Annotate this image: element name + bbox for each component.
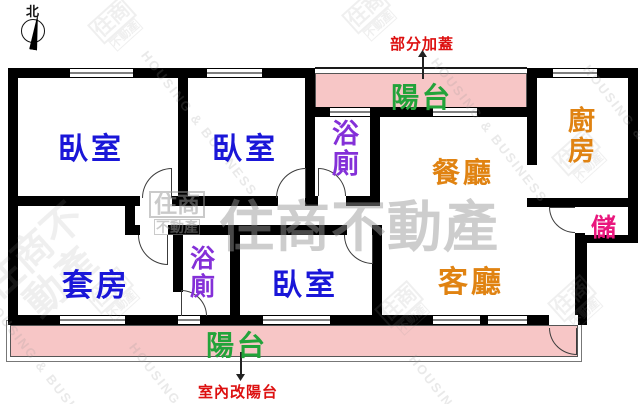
wall: [370, 107, 380, 200]
room-label-living: 客廳: [438, 257, 504, 301]
wall: [305, 68, 315, 206]
room-label-kitchen: 廚房: [567, 106, 596, 166]
door-arc-bedroom3: [344, 235, 373, 264]
window: [488, 315, 527, 325]
room-label-storage: 儲: [591, 208, 616, 244]
compass-north-label: 北: [26, 1, 39, 20]
window: [70, 68, 133, 78]
wall: [125, 225, 140, 235]
wall: [575, 243, 587, 325]
door-arc-bedroom1: [142, 168, 172, 198]
wall: [8, 196, 140, 206]
room-label-balcony-top: 陽台: [391, 76, 453, 116]
wall: [230, 235, 240, 315]
window: [207, 68, 262, 78]
window: [433, 315, 480, 325]
floorplan-canvas: 北 部分加蓋 室內改陽台 臥室 臥室 浴廁 陽台 餐廳 廚房 套房 浴廁 臥室 …: [0, 0, 640, 404]
room-label-suite: 套房: [62, 260, 130, 305]
wall: [173, 235, 183, 292]
wall: [346, 196, 380, 206]
arrow-down-icon: [236, 374, 245, 381]
room-label-bedroom1: 臥室: [58, 124, 124, 168]
window: [60, 315, 125, 325]
room-label-bath1: 浴廁: [331, 119, 360, 179]
door-arc-suite: [138, 235, 168, 265]
window: [330, 107, 370, 117]
wall: [527, 198, 638, 207]
door-arc-storage: [549, 207, 575, 233]
window: [553, 68, 597, 78]
balcony-door-opening: [548, 315, 579, 325]
wall: [178, 78, 188, 196]
wall: [8, 68, 315, 78]
door-arc-bedroom2: [276, 168, 306, 198]
watermark-tile-logo: 住商不動產: [83, 0, 153, 61]
room-label-dining: 餐廳: [432, 151, 494, 191]
wall: [168, 225, 347, 235]
room-label-balcony-bottom: 陽台: [206, 324, 268, 364]
room-label-bath2: 浴廁: [189, 245, 216, 301]
balcony-top-thin-edge: [315, 67, 527, 69]
wall: [306, 196, 318, 206]
window: [263, 315, 330, 325]
wall: [172, 196, 278, 206]
balcony-bottom-area: [10, 325, 578, 357]
room-label-bedroom3: 臥室: [272, 260, 338, 304]
window: [178, 315, 200, 325]
bottom-annotation: 室內改陽台: [198, 381, 278, 402]
wall: [628, 68, 638, 243]
room-label-bedroom2: 臥室: [212, 124, 278, 168]
wall: [372, 225, 382, 315]
